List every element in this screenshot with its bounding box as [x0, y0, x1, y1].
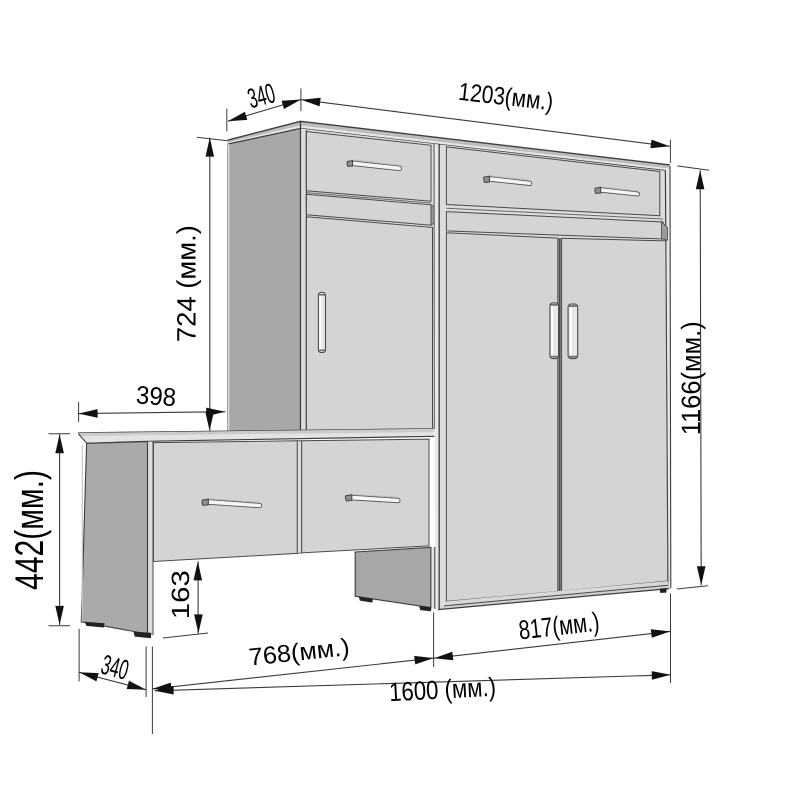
svg-text:724 (мм.): 724 (мм.): [172, 225, 202, 342]
svg-text:1600 (мм.): 1600 (мм.): [388, 672, 496, 708]
svg-text:398: 398: [135, 381, 177, 412]
svg-text:163: 163: [167, 570, 195, 619]
svg-text:1166(мм.): 1166(мм.): [676, 321, 706, 435]
svg-text:442(мм.): 442(мм.): [8, 470, 52, 590]
